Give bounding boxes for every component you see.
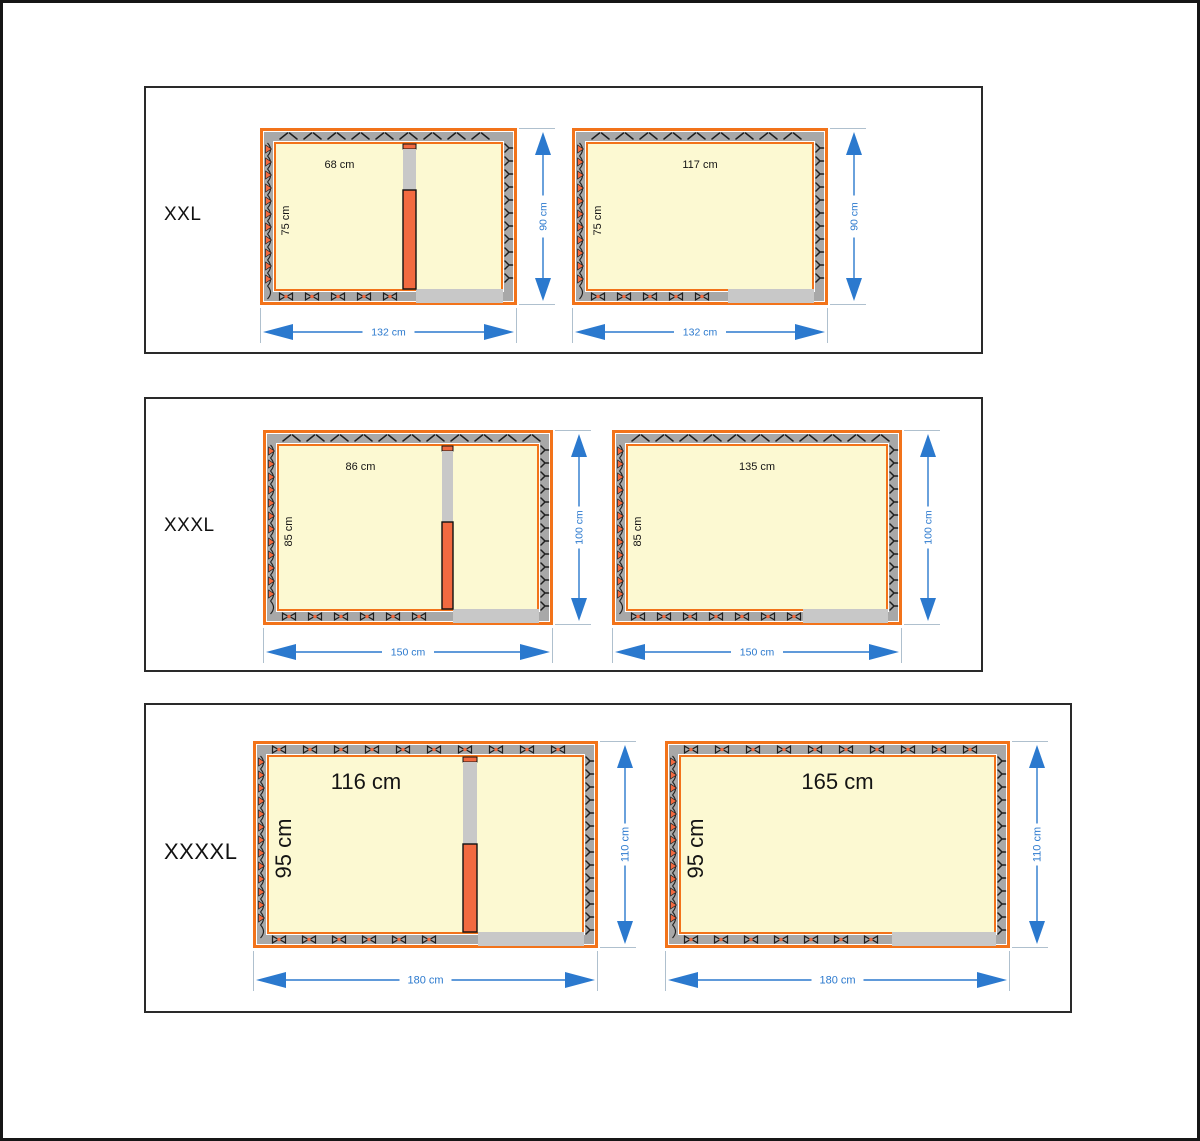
floorplan-xxxxl-two-room: 116 cm95 cm110 cm180 cm (253, 741, 672, 1017)
size-label-xxl: XXL (164, 204, 201, 226)
outer-height-dimension: 110 cm (1032, 827, 1044, 862)
outer-height-dimension: 90 cm (849, 202, 861, 231)
interior-width-label: 86 cm (346, 461, 376, 473)
arrow-right-icon (484, 324, 514, 340)
interior-height-label: 85 cm (283, 517, 295, 547)
arrow-left-icon (266, 644, 296, 660)
arrow-up-icon (846, 132, 862, 155)
arrow-left-icon (668, 972, 698, 988)
floorplan-svg-xxl-two-room: 68 cm75 cm90 cm132 cm (260, 128, 591, 369)
divider-cap (442, 446, 453, 451)
floorplan-svg-xxxxl-two-room: 116 cm95 cm110 cm180 cm (253, 741, 672, 1012)
arrow-up-icon (535, 132, 551, 155)
interior-height-label: 75 cm (280, 206, 292, 236)
entrance-opening (728, 289, 814, 303)
arrow-down-icon (535, 278, 551, 301)
arrow-right-icon (977, 972, 1007, 988)
outer-width-dimension: 150 cm (740, 647, 775, 659)
interior-width-label: 117 cm (682, 159, 717, 171)
size-label-xxxxl: XXXXL (164, 839, 237, 865)
floor-interior (269, 757, 582, 932)
outer-height-dimension: 100 cm (574, 510, 586, 545)
outer-height-dimension: 110 cm (620, 827, 632, 862)
arrow-left-icon (263, 324, 293, 340)
arrow-down-icon (617, 921, 633, 944)
interior-width-label: 116 cm (331, 769, 402, 794)
arrow-up-icon (617, 745, 633, 768)
entrance-opening (453, 609, 539, 623)
interior-width-label: 165 cm (801, 769, 873, 794)
floorplan-svg-xxl-one-room: 117 cm75 cm90 cm132 cm (572, 128, 902, 369)
entrance-opening (416, 289, 503, 303)
outer-height-dimension: 90 cm (538, 202, 550, 231)
divider-wall (463, 844, 477, 932)
arrow-right-icon (565, 972, 595, 988)
arrow-left-icon (575, 324, 605, 340)
arrow-down-icon (920, 598, 936, 621)
size-label-xxxl: XXXL (164, 515, 215, 537)
outer-width-dimension: 132 cm (371, 327, 406, 339)
outer-width-dimension: 150 cm (391, 647, 426, 659)
floorplan-svg-xxxxl-one-room: 165 cm95 cm110 cm180 cm (665, 741, 1084, 1012)
arrow-down-icon (846, 278, 862, 301)
arrow-up-icon (920, 434, 936, 457)
floor-interior (279, 446, 537, 609)
divider-passage (403, 149, 416, 190)
arrow-down-icon (1029, 921, 1045, 944)
interior-width-label: 135 cm (739, 461, 775, 473)
interior-height-label: 95 cm (271, 819, 296, 879)
floorplan-xxxl-one-room: 135 cm85 cm100 cm150 cm (612, 430, 976, 694)
divider-passage (442, 451, 453, 522)
divider-wall (403, 190, 416, 289)
entrance-opening (803, 609, 888, 623)
interior-height-label: 75 cm (592, 206, 604, 236)
arrow-right-icon (795, 324, 825, 340)
arrow-right-icon (520, 644, 550, 660)
floor-interior (276, 144, 501, 289)
divider-cap (403, 144, 416, 149)
outer-width-dimension: 180 cm (407, 975, 443, 987)
arrow-right-icon (869, 644, 899, 660)
interior-height-label: 95 cm (683, 819, 708, 879)
floorplan-xxxxl-one-room: 165 cm95 cm110 cm180 cm (665, 741, 1084, 1017)
floorplan-xxl-two-room: 68 cm75 cm90 cm132 cm (260, 128, 591, 374)
floorplan-svg-xxxl-two-room: 86 cm85 cm100 cm150 cm (263, 430, 627, 689)
floorplan-xxl-one-room: 117 cm75 cm90 cm132 cm (572, 128, 902, 374)
divider-wall (442, 522, 453, 609)
divider-passage (463, 762, 477, 844)
arrow-up-icon (571, 434, 587, 457)
arrow-left-icon (256, 972, 286, 988)
floorplan-xxxl-two-room: 86 cm85 cm100 cm150 cm (263, 430, 627, 694)
outer-height-dimension: 100 cm (923, 510, 935, 545)
arrow-down-icon (571, 598, 587, 621)
outer-width-dimension: 132 cm (683, 327, 718, 339)
floorplan-svg-xxxl-one-room: 135 cm85 cm100 cm150 cm (612, 430, 976, 689)
interior-height-label: 85 cm (632, 517, 644, 547)
entrance-opening (892, 932, 996, 946)
arrow-left-icon (615, 644, 645, 660)
outer-width-dimension: 180 cm (819, 975, 855, 987)
entrance-opening (478, 932, 584, 946)
arrow-up-icon (1029, 745, 1045, 768)
interior-width-label: 68 cm (325, 159, 355, 171)
divider-cap (463, 757, 477, 762)
